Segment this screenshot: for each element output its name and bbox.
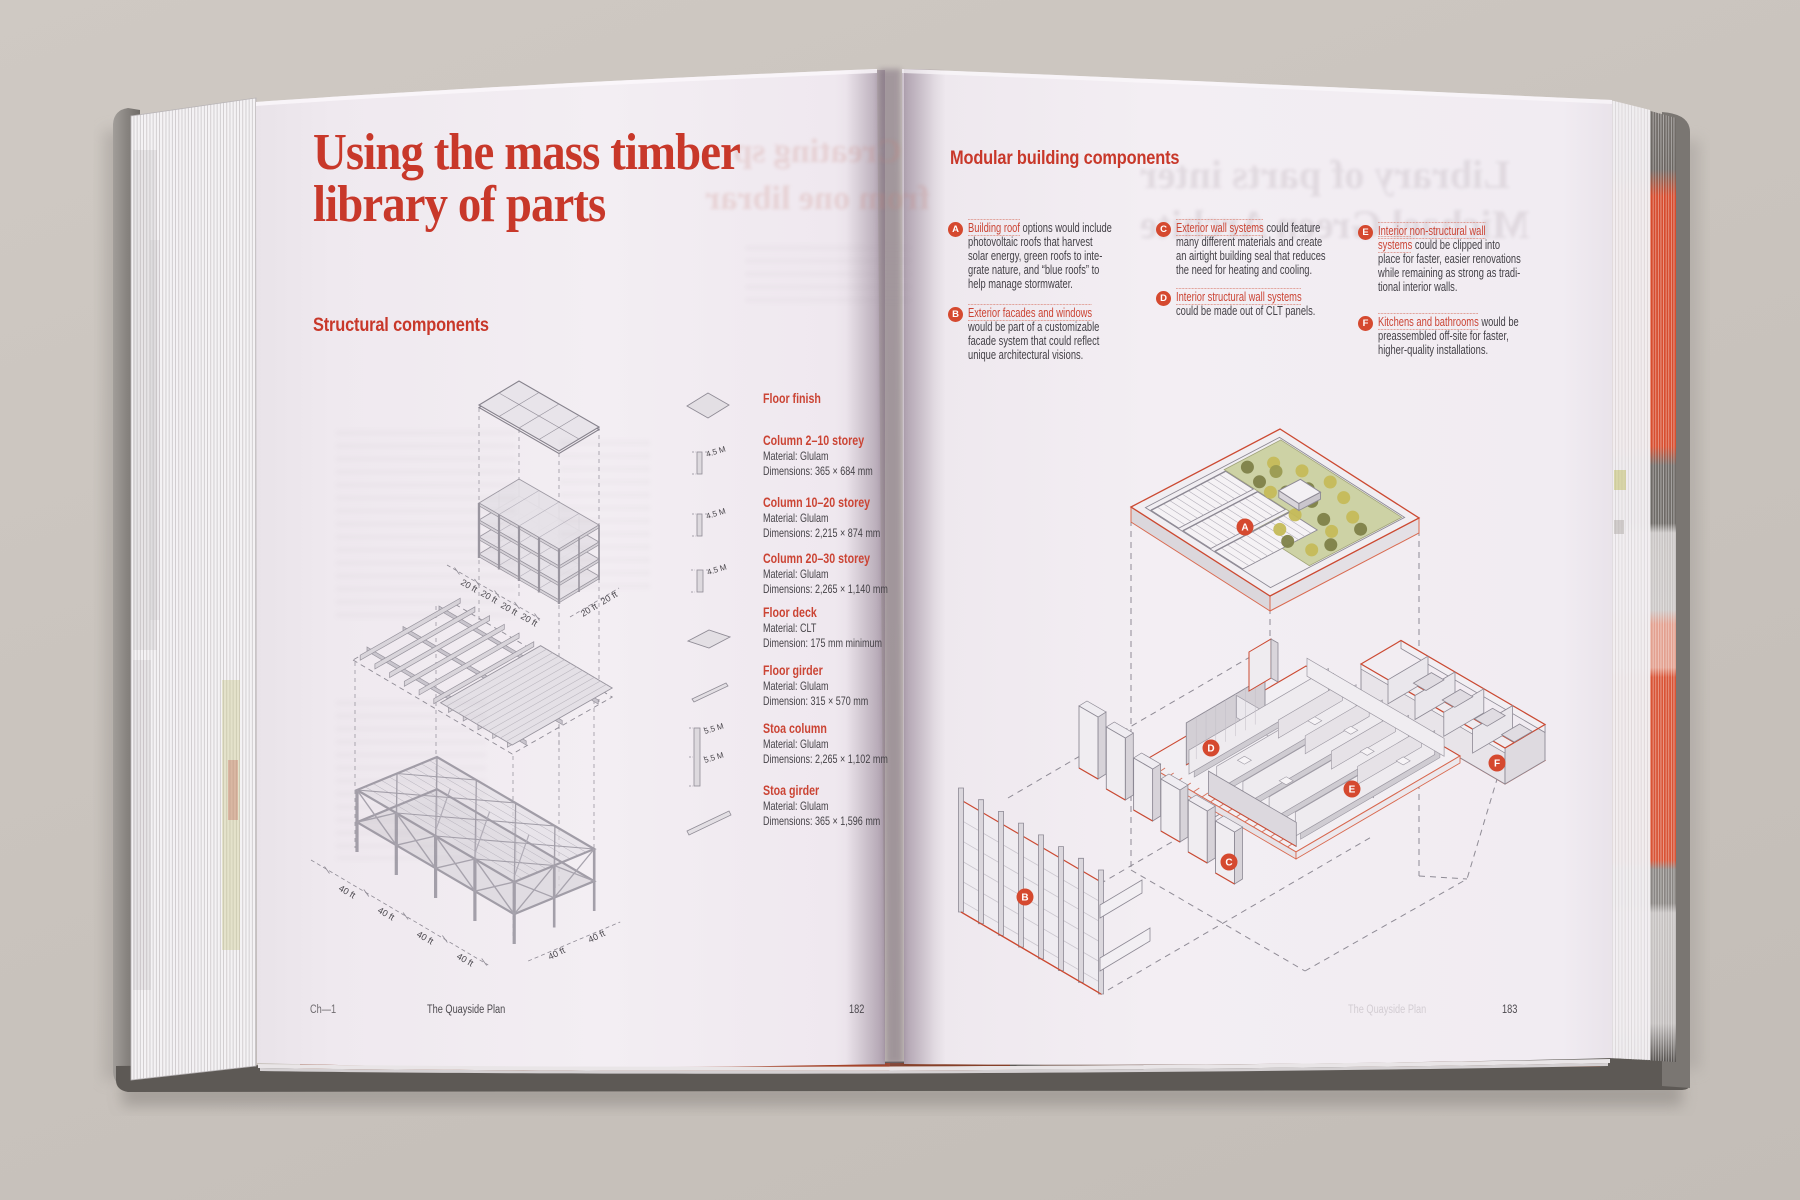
- svg-text:B: B: [1021, 893, 1028, 904]
- svg-text:D: D: [1207, 744, 1214, 755]
- svg-text:5.5 M: 5.5 M: [703, 750, 725, 765]
- svg-text:40 ft: 40 ft: [455, 951, 476, 969]
- svg-text:20 ft: 20 ft: [479, 588, 500, 606]
- svg-text:40 ft: 40 ft: [546, 945, 567, 962]
- svg-text:20 ft: 20 ft: [599, 589, 620, 607]
- svg-text:40 ft: 40 ft: [415, 929, 436, 947]
- svg-text:E: E: [1349, 785, 1356, 796]
- svg-text:40 ft: 40 ft: [337, 883, 358, 901]
- svg-text:20 ft: 20 ft: [519, 611, 540, 629]
- svg-text:F: F: [1494, 759, 1500, 770]
- svg-text:40 ft: 40 ft: [586, 928, 607, 945]
- svg-text:4.5 M: 4.5 M: [705, 444, 727, 459]
- svg-text:20 ft: 20 ft: [459, 577, 480, 595]
- svg-text:4.5 M: 4.5 M: [705, 506, 727, 521]
- svg-text:C: C: [1225, 858, 1232, 869]
- svg-text:5.5 M: 5.5 M: [703, 721, 725, 736]
- svg-text:A: A: [1241, 523, 1248, 534]
- svg-text:20 ft: 20 ft: [499, 600, 520, 618]
- svg-text:4.5 M: 4.5 M: [706, 562, 728, 577]
- svg-text:20 ft: 20 ft: [579, 601, 600, 619]
- svg-text:40 ft: 40 ft: [376, 905, 397, 923]
